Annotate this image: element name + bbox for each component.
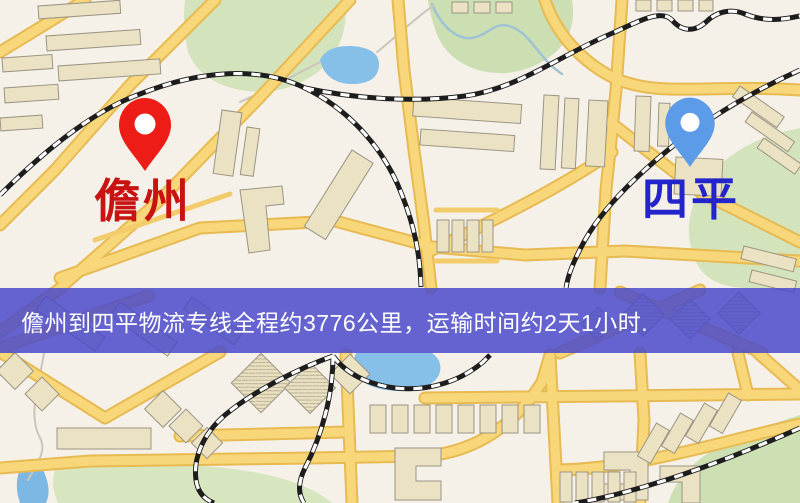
route-info-banner: 儋州到四平物流专线全程约3776公里，运输时间约2天1小时. xyxy=(0,288,800,353)
route-info-text: 儋州到四平物流专线全程约3776公里，运输时间约2天1小时. xyxy=(21,304,648,338)
logistics-route-map: 儋州 四平 儋州到四平物流专线全程约3776公里，运输时间约2天1小时. xyxy=(0,0,800,503)
destination-label: 四平 xyxy=(642,173,740,225)
origin-label: 儋州 xyxy=(94,175,192,227)
map-canvas: 儋州 四平 xyxy=(0,0,800,503)
